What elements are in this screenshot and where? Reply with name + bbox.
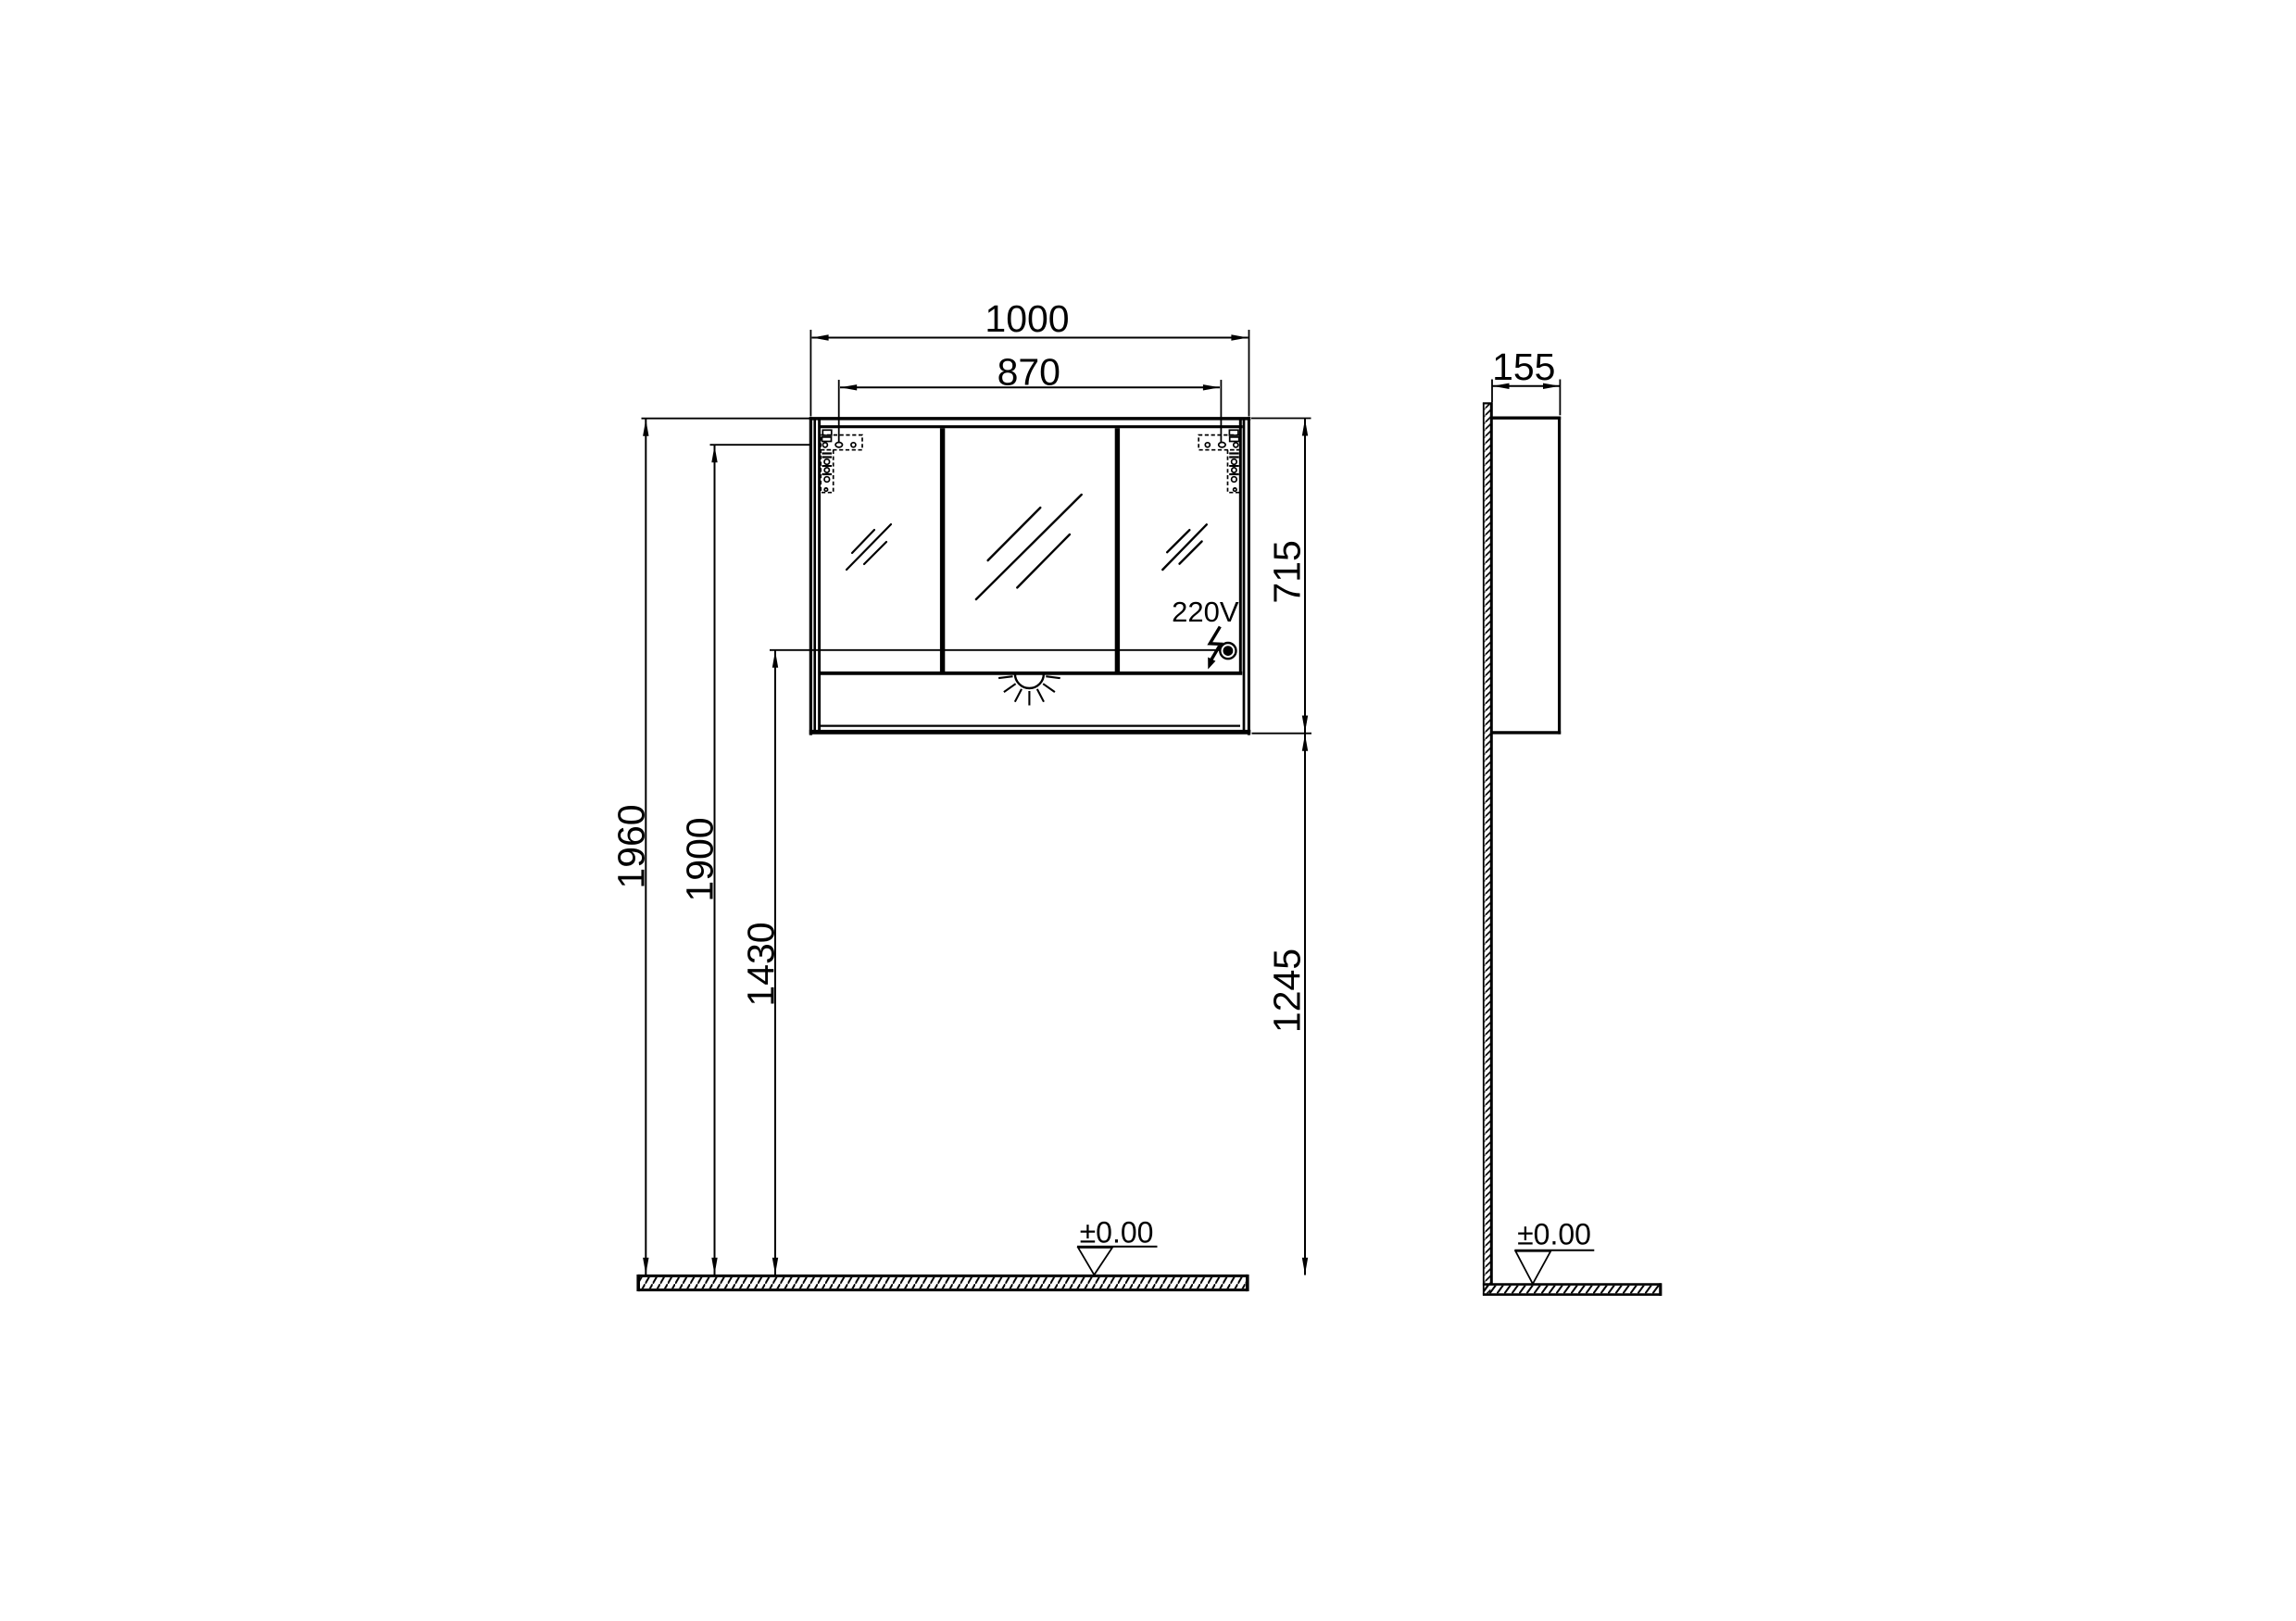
svg-text:±0.00: ±0.00 bbox=[1517, 1218, 1591, 1251]
svg-text:155: 155 bbox=[1492, 346, 1555, 388]
svg-text:1245: 1245 bbox=[1266, 949, 1309, 1033]
svg-text:715: 715 bbox=[1266, 540, 1309, 603]
svg-text:220V: 220V bbox=[1172, 596, 1239, 628]
svg-text:±0.00: ±0.00 bbox=[1080, 1216, 1154, 1250]
svg-text:1000: 1000 bbox=[985, 297, 1069, 340]
